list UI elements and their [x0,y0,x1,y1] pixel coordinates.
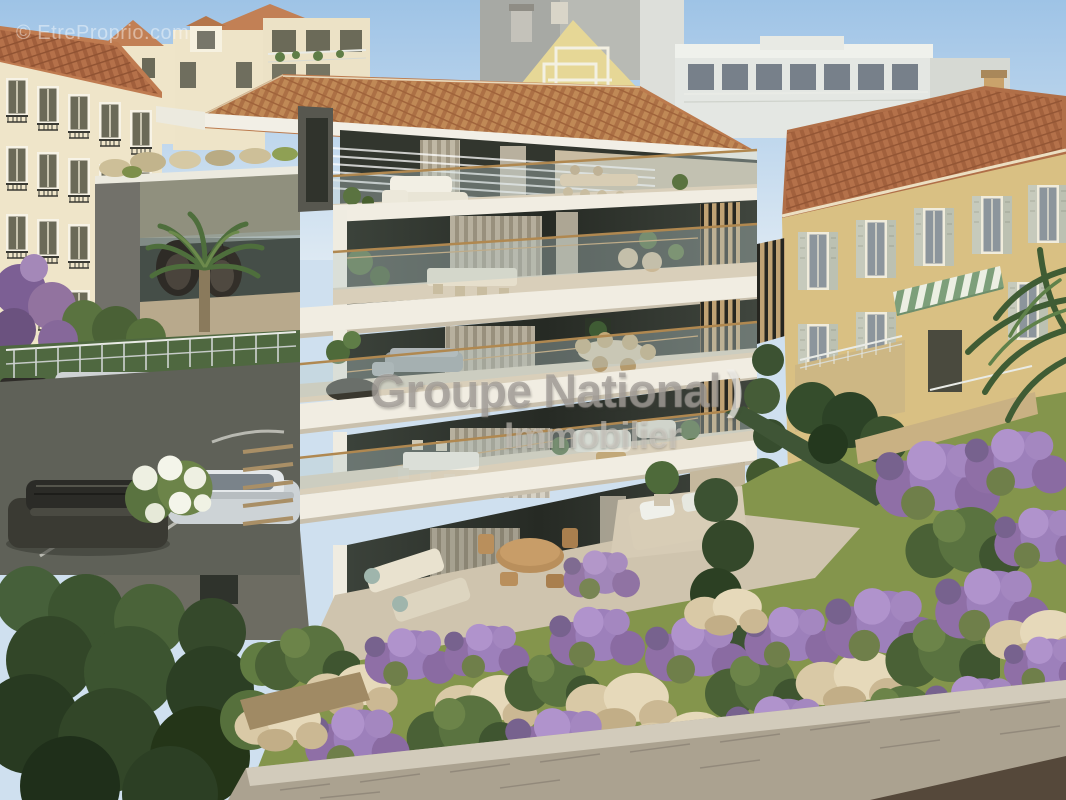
watermark-brand-mark: ) [727,361,743,419]
parking-area [0,330,300,575]
watermark-corner: © EtreProprio.com [16,22,189,45]
property-render-photo: © EtreProprio.com Groupe National) Immob… [0,0,1066,800]
watermark-brand-line1: Groupe National) [370,366,743,415]
watermark-brand: Groupe National) Immobilier [370,366,743,454]
window-band [688,64,918,90]
watermark-brand-line2: Immobilier [504,417,743,454]
